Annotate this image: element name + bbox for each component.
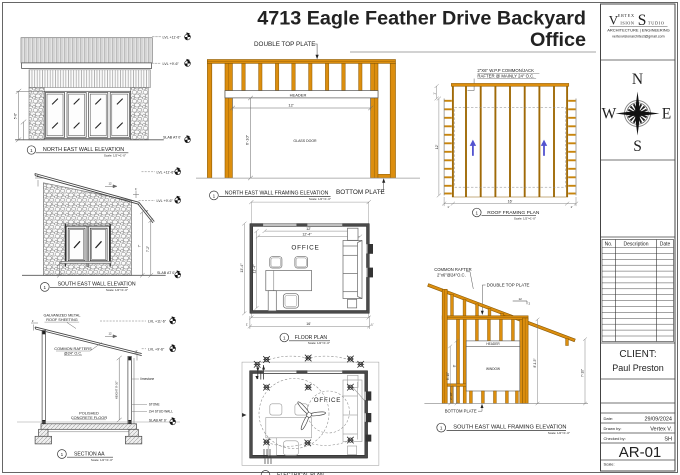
svg-text:ARCHITECTURE | ENGINEERING: ARCHITECTURE | ENGINEERING	[607, 28, 670, 33]
svg-text:6'-10": 6'-10"	[244, 134, 249, 145]
svg-text:12': 12'	[288, 103, 293, 108]
svg-text:LVL +11'-6": LVL +11'-6"	[157, 170, 176, 174]
svg-text:2x4 STUD WALL: 2x4 STUD WALL	[149, 410, 173, 414]
svg-text:SLAB AT 0': SLAB AT 0'	[157, 271, 175, 275]
svg-text:OFFICE: OFFICE	[291, 244, 319, 251]
svg-text:Scale: 1/2"=1'-0": Scale: 1/2"=1'-0"	[104, 154, 126, 158]
svg-text:7': 7'	[138, 244, 142, 247]
svg-text:SOUTH EAST WALL ELEVATION: SOUTH EAST WALL ELEVATION	[58, 282, 136, 288]
svg-text:FLOOR PLAN: FLOOR PLAN	[295, 335, 328, 341]
svg-text:STONE: STONE	[149, 402, 160, 406]
svg-text:SLAB AT 0': SLAB AT 0'	[149, 418, 167, 422]
svg-text:COMMON RAFTER: COMMON RAFTER	[434, 267, 471, 272]
svg-text:Paul Preston: Paul Preston	[612, 363, 664, 373]
svg-text:E: E	[662, 106, 671, 123]
svg-text:1: 1	[476, 211, 479, 216]
svg-text:HEADER: HEADER	[290, 92, 307, 97]
svg-text:16': 16'	[306, 322, 311, 326]
svg-text:12'-4": 12'-4"	[302, 232, 312, 236]
svg-text:ROOF SHEETING: ROOF SHEETING	[46, 318, 77, 322]
svg-text:LVL +11'-6": LVL +11'-6"	[163, 36, 182, 40]
svg-text:BOTTOM PLATE: BOTTOM PLATE	[445, 409, 477, 414]
svg-text:TUDIO: TUDIO	[648, 20, 665, 25]
svg-text:SLAB AT 0': SLAB AT 0'	[163, 136, 181, 140]
svg-text:1: 1	[213, 193, 216, 198]
svg-text:AR-01: AR-01	[619, 444, 662, 461]
svg-text:5'-6": 5'-6"	[14, 113, 18, 119]
svg-text:Office: Office	[530, 29, 586, 51]
svg-text:Date:: Date:	[604, 416, 614, 421]
svg-text:CONCRETE FLOOR: CONCRETE FLOOR	[71, 415, 108, 420]
svg-text:N: N	[632, 71, 643, 88]
svg-text:SOUTH EAST WALL FRAMING ELEVAT: SOUTH EAST WALL FRAMING ELEVATION	[453, 425, 566, 431]
svg-text:Drawn by:: Drawn by:	[604, 426, 622, 431]
svg-text:GLASS DOOR: GLASS DOOR	[293, 139, 317, 143]
svg-text:Description: Description	[623, 242, 648, 248]
svg-text:W: W	[602, 106, 617, 123]
svg-text:Scale: 1/2"=1'-0": Scale: 1/2"=1'-0"	[91, 458, 113, 462]
svg-text:Scale: 1/2"=1'-0": Scale: 1/2"=1'-0"	[514, 216, 536, 220]
svg-text:DOUBLE TOP PLATE: DOUBLE TOP PLATE	[487, 282, 530, 287]
svg-text:S: S	[633, 138, 642, 155]
svg-text:COMMON RAFTERS: COMMON RAFTERS	[54, 346, 92, 351]
svg-text:RAFTER @ MAINLY 24" O.C.: RAFTER @ MAINLY 24" O.C.	[477, 74, 534, 79]
svg-text:Vertex V.: Vertex V.	[650, 427, 672, 433]
svg-text:12: 12	[519, 297, 523, 301]
svg-text:DOUBLE TOP PLATE: DOUBLE TOP PLATE	[254, 41, 315, 48]
svg-text:1: 1	[30, 148, 33, 153]
svg-text:CLIENT:: CLIENT:	[619, 349, 656, 360]
svg-text:1: 1	[283, 336, 286, 341]
svg-text:2'-10": 2'-10"	[449, 392, 453, 400]
svg-text:No.: No.	[605, 242, 613, 248]
svg-text:LVL +9'-6": LVL +9'-6"	[157, 199, 174, 203]
svg-text:12: 12	[108, 181, 112, 185]
svg-text:NORTH EAST WALL ELEVATION: NORTH EAST WALL ELEVATION	[43, 147, 124, 153]
svg-text:BOTTOM PLATE: BOTTOM PLATE	[336, 189, 385, 196]
svg-text:Scale: 1/2"=1'-0": Scale: 1/2"=1'-0"	[309, 197, 331, 201]
svg-text:Scale:: Scale:	[604, 462, 615, 467]
svg-text:11'-4": 11'-4"	[252, 264, 256, 274]
svg-text:12': 12'	[306, 227, 311, 231]
svg-text:12: 12	[108, 331, 112, 335]
svg-text:NORTH EAST WALL FRAMING ELEVAT: NORTH EAST WALL FRAMING ELEVATION	[225, 191, 329, 197]
svg-text:SH: SH	[664, 437, 672, 443]
svg-text:ERTEX: ERTEX	[618, 13, 635, 18]
svg-text:2"X6" W.P.P COMMON/JACK: 2"X6" W.P.P COMMON/JACK	[477, 68, 534, 73]
svg-text:SECTION AA: SECTION AA	[74, 451, 105, 457]
svg-text:LVL +9'-6": LVL +9'-6"	[163, 62, 180, 66]
svg-text:Date: Date	[660, 242, 671, 248]
svg-text:6'-10": 6'-10"	[446, 372, 450, 380]
svg-text:29/09/2024: 29/09/2024	[644, 417, 672, 423]
svg-text:ISION: ISION	[620, 20, 634, 25]
svg-text:Scale: 1/2"=1'-0": Scale: 1/2"=1'-0"	[106, 288, 128, 292]
svg-text:16': 16'	[508, 199, 513, 203]
svg-text:7'-10": 7'-10"	[581, 369, 585, 377]
svg-text:OFFICE: OFFICE	[314, 397, 342, 404]
svg-text:13'-4": 13'-4"	[240, 263, 244, 273]
svg-text:Scale: 1/2"=1'-0": Scale: 1/2"=1'-0"	[548, 431, 570, 435]
svg-text:1: 1	[440, 426, 443, 431]
svg-text:8'-1.5": 8'-1.5"	[533, 358, 537, 367]
svg-text:7'-2": 7'-2"	[146, 246, 150, 252]
svg-text:2"x6"@24"O.C.: 2"x6"@24"O.C.	[437, 273, 466, 278]
svg-text:WINDOW: WINDOW	[486, 367, 500, 371]
svg-text:vertexvisionarchitect@gmail.co: vertexvisionarchitect@gmail.com	[612, 34, 665, 38]
svg-text:Scale: 1/2"=1'-0": Scale: 1/2"=1'-0"	[308, 341, 330, 345]
svg-text:1: 1	[61, 452, 64, 457]
svg-text:LVL +11'-6": LVL +11'-6"	[148, 320, 167, 324]
svg-text:@24" O.C.: @24" O.C.	[64, 351, 82, 355]
svg-text:HEIGHT 9'-10": HEIGHT 9'-10"	[115, 381, 119, 399]
svg-text:GALVANIZED METAL: GALVANIZED METAL	[44, 314, 81, 318]
svg-text:limestone: limestone	[141, 377, 155, 381]
svg-text:1: 1	[44, 285, 47, 290]
svg-text:4713 Eagle Feather Drive Backy: 4713 Eagle Feather Drive Backyard	[257, 8, 586, 30]
svg-text:12': 12'	[435, 144, 439, 149]
svg-text:8': 8'	[453, 364, 457, 367]
svg-text:ROOF FRAMING PLAN: ROOF FRAMING PLAN	[487, 210, 540, 216]
svg-text:Checked by:: Checked by:	[604, 436, 626, 441]
svg-text:LVL +9'-6": LVL +9'-6"	[148, 347, 165, 351]
